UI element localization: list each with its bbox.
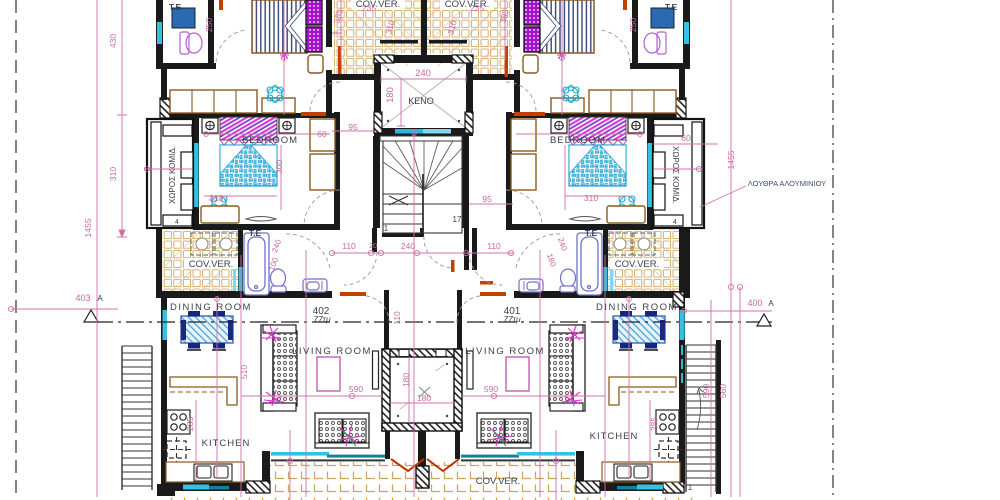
svg-text:235: 235 xyxy=(362,3,376,13)
svg-text:180: 180 xyxy=(385,87,396,103)
svg-text:180: 180 xyxy=(417,393,431,403)
svg-text:95: 95 xyxy=(348,122,358,132)
svg-text:T.E: T.E xyxy=(665,2,678,12)
svg-text:A: A xyxy=(768,299,774,308)
svg-text:510: 510 xyxy=(239,365,249,379)
svg-text:4: 4 xyxy=(175,219,179,226)
svg-text:300: 300 xyxy=(274,160,284,174)
svg-text:403: 403 xyxy=(75,293,90,303)
svg-text:95: 95 xyxy=(482,194,492,204)
svg-text:ΛΟΥΘΡΑ ΑΛΟΥΜΙΝΙΟΥ: ΛΟΥΘΡΑ ΑΛΟΥΜΙΝΙΟΥ xyxy=(748,179,826,188)
svg-text:BEDROOM: BEDROOM xyxy=(550,135,606,146)
svg-text:1455: 1455 xyxy=(83,218,93,237)
svg-text:T.E: T.E xyxy=(585,228,598,238)
svg-text:60: 60 xyxy=(681,133,691,143)
svg-text:310: 310 xyxy=(209,193,223,203)
svg-text:590: 590 xyxy=(701,384,711,398)
svg-text:110: 110 xyxy=(342,241,356,251)
svg-text:20: 20 xyxy=(369,243,377,250)
svg-text:60: 60 xyxy=(317,129,327,139)
svg-text:77τμ: 77τμ xyxy=(503,314,521,324)
svg-text:ΧΩΡΟΣ ΚΟΜΙΔ.: ΧΩΡΟΣ ΚΟΜΙΔ. xyxy=(671,146,680,204)
svg-text:285: 285 xyxy=(649,417,659,431)
svg-text:590: 590 xyxy=(349,384,363,394)
svg-text:250: 250 xyxy=(204,18,214,32)
svg-text:A: A xyxy=(97,294,103,303)
svg-text:590: 590 xyxy=(484,384,498,394)
svg-text:310: 310 xyxy=(584,193,598,203)
svg-text:110: 110 xyxy=(487,241,501,251)
svg-text:110: 110 xyxy=(392,311,402,325)
svg-text:17: 17 xyxy=(453,215,462,224)
svg-text:4: 4 xyxy=(673,219,677,226)
svg-text:310: 310 xyxy=(108,167,118,181)
svg-text:LIVING ROOM: LIVING ROOM xyxy=(465,346,545,357)
svg-text:430: 430 xyxy=(108,34,118,48)
svg-text:KITCHEN: KITCHEN xyxy=(202,438,251,449)
svg-text:250: 250 xyxy=(628,18,638,32)
svg-text:T.E: T.E xyxy=(249,228,262,238)
svg-text:285: 285 xyxy=(185,417,195,431)
svg-text:KITCHEN: KITCHEN xyxy=(590,431,639,442)
svg-text:ΧΩΡΟΣ ΚΟΜΙΔ.: ΧΩΡΟΣ ΚΟΜΙΔ. xyxy=(168,146,177,204)
svg-text:235: 235 xyxy=(470,3,484,13)
svg-text:1: 1 xyxy=(384,224,389,233)
svg-text:1: 1 xyxy=(688,483,693,492)
svg-text:ΚΕΝΟ: ΚΕΝΟ xyxy=(408,96,434,106)
svg-text:COV.VER.: COV.VER. xyxy=(615,259,660,270)
svg-text:240: 240 xyxy=(415,68,431,79)
svg-text:COV.VER.: COV.VER. xyxy=(476,476,521,487)
svg-text:DINING ROOM: DINING ROOM xyxy=(170,302,252,313)
svg-text:560: 560 xyxy=(718,384,728,398)
svg-text:77τμ: 77τμ xyxy=(313,314,331,324)
svg-text:COV.VER.: COV.VER. xyxy=(189,259,234,270)
svg-text:BEDROOM: BEDROOM xyxy=(242,135,298,146)
svg-text:T.E: T.E xyxy=(169,2,182,12)
svg-text:DINING ROOM: DINING ROOM xyxy=(596,302,678,313)
svg-text:LIVING ROOM: LIVING ROOM xyxy=(292,346,372,357)
svg-text:240: 240 xyxy=(401,241,415,251)
svg-text:180: 180 xyxy=(401,373,411,387)
svg-text:1455: 1455 xyxy=(726,150,736,169)
svg-text:400: 400 xyxy=(747,298,762,308)
